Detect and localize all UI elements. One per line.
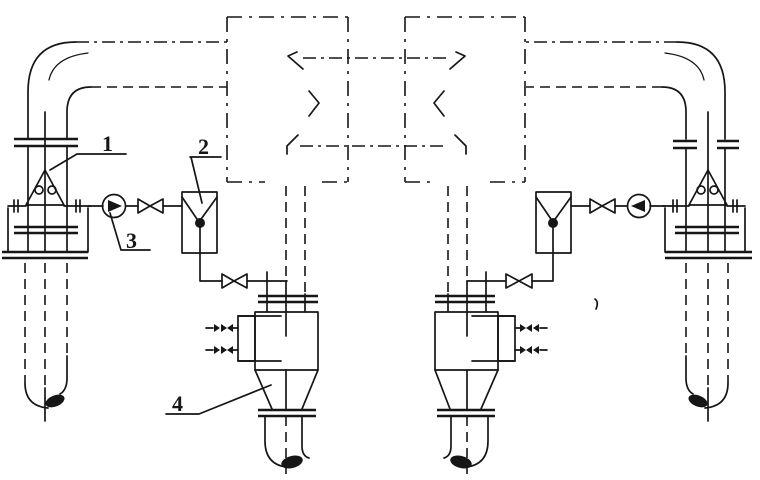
valve-bowtie [506, 274, 532, 288]
ejector-assembly-left [2, 112, 103, 421]
hose-coupling [64, 200, 90, 212]
boiler-outline-left [227, 17, 348, 182]
nozzle-circle [48, 186, 56, 194]
hose-coupling [727, 200, 745, 212]
callout-4-text: 4 [172, 391, 183, 416]
boiler-outline-right [405, 17, 525, 182]
duct-from-boiler [286, 186, 305, 294]
upper-flange [673, 141, 739, 148]
callout-3: 3 [110, 213, 150, 253]
shutoff-valve-right-1 [571, 199, 627, 213]
feeder-outlet-dot [548, 218, 558, 228]
schematic-page: 1 2 3 4 [0, 0, 760, 480]
shutoff-valve-right-2 [467, 274, 532, 288]
aeration-valve [515, 346, 547, 354]
valve-bowtie [138, 199, 163, 213]
callout-3-text: 3 [126, 228, 137, 253]
callout-1: 1 [50, 131, 126, 170]
aeration-valve [515, 324, 547, 332]
collector-right [435, 186, 547, 478]
shutoff-valve-left-2 [222, 274, 287, 288]
nozzle-circle [697, 186, 705, 194]
outlet-flange [437, 410, 495, 416]
ejector-assembly-right [650, 112, 752, 421]
valve-bowtie [590, 199, 615, 213]
duct-from-boiler [448, 186, 467, 294]
aeration-valve [206, 346, 238, 354]
collector-left [206, 186, 318, 478]
upper-flange [14, 139, 78, 146]
callout-2-text: 2 [198, 134, 209, 159]
air-box [238, 316, 255, 361]
air-box [498, 316, 515, 361]
pipe-open-end [449, 453, 473, 470]
flue-gas-flow-marks [287, 52, 466, 154]
blower-right [628, 195, 651, 218]
blower-arrow [108, 200, 122, 212]
hopper [255, 370, 318, 409]
feeder-right [532, 192, 571, 281]
nozzle-circle [710, 186, 718, 194]
base-flange [665, 252, 752, 258]
air-loop-pipe [8, 206, 103, 252]
pipe-open-end [280, 453, 304, 470]
flue-duct-right [526, 42, 725, 139]
hose-coupling [663, 200, 689, 212]
hopper [435, 370, 498, 409]
base-flange [2, 252, 88, 258]
lower-flange [14, 227, 78, 233]
aeration-valve [206, 324, 238, 332]
shutoff-valve-left-1 [138, 199, 182, 213]
valve-bowtie [222, 274, 247, 288]
flue-duct-left [28, 42, 227, 139]
air-loop-pipe [650, 206, 745, 252]
feeder-outlet-dot [195, 218, 205, 228]
nozzle-circle [35, 186, 43, 194]
blower-arrow [631, 200, 645, 212]
scan-speck [595, 299, 597, 309]
outlet-flange [258, 410, 316, 416]
lower-flange [675, 227, 739, 233]
piping-schematic-drawing: 1 2 3 4 [0, 0, 760, 480]
blower-left [103, 195, 139, 218]
down-pipe-elbow [25, 356, 67, 421]
callout-1-text: 1 [102, 131, 113, 156]
feeder-left [182, 192, 222, 281]
hose-coupling [8, 200, 26, 212]
callout-4: 4 [166, 385, 271, 416]
down-pipe-elbow [686, 356, 728, 421]
leader-line [50, 154, 126, 170]
